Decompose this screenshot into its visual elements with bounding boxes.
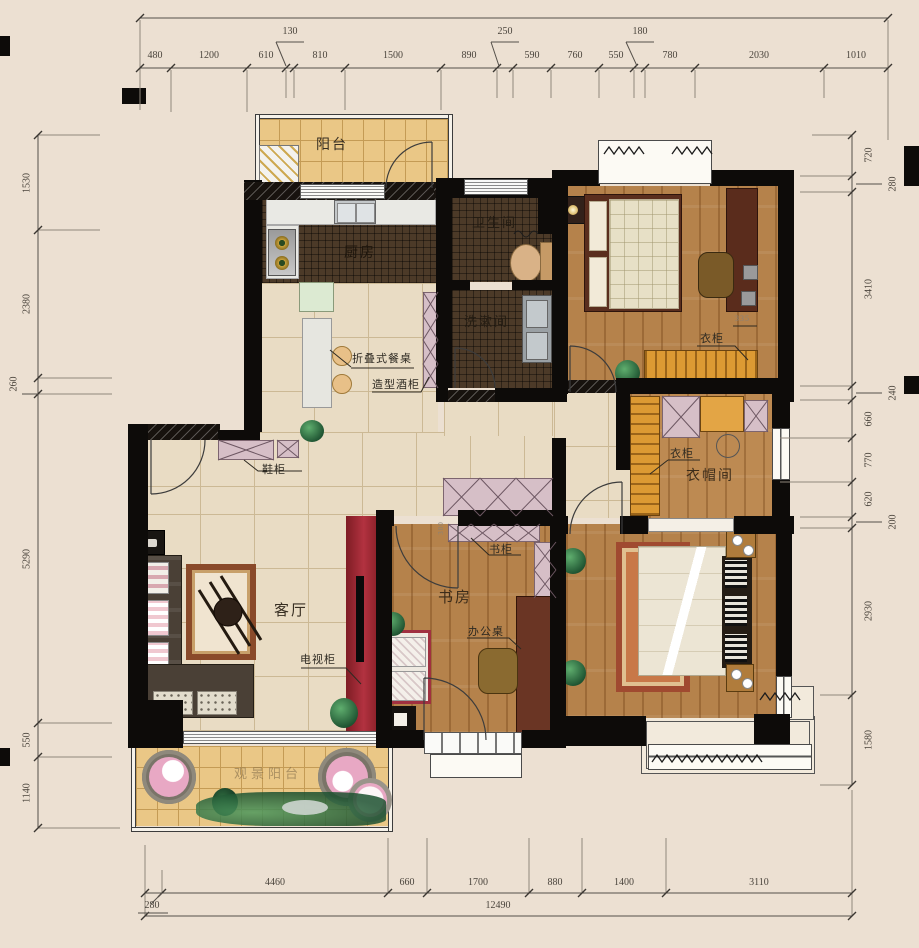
- dim-top: 1500: [383, 50, 403, 61]
- pillow: [725, 560, 747, 588]
- pillow: [589, 257, 607, 307]
- dim-right: 2930: [864, 601, 875, 621]
- wall: [244, 180, 262, 432]
- sliding-window: [300, 184, 385, 199]
- lamp: [568, 205, 578, 215]
- side-table-item: [147, 539, 157, 547]
- dim-top: 780: [663, 50, 678, 61]
- sink-basin: [356, 203, 375, 223]
- entry-wall: [146, 424, 220, 440]
- dim-top: 2030: [749, 50, 769, 61]
- dining-table: [302, 318, 332, 408]
- wall: [616, 378, 794, 394]
- wall: [552, 170, 600, 186]
- dim-right: 660: [864, 412, 875, 427]
- wall: [776, 524, 792, 676]
- dim-left: 1530: [22, 173, 33, 193]
- stool: [716, 434, 740, 458]
- room-label-bathroom: 卫生间: [472, 212, 517, 231]
- dim-left: 550: [22, 733, 33, 748]
- cloakroom-cabinet-3: [744, 400, 768, 432]
- wall: [436, 388, 448, 402]
- master-side-window: [776, 676, 792, 718]
- dim-top: 610: [259, 50, 274, 61]
- dim-right: 3410: [864, 279, 875, 299]
- dim-top: 550: [609, 50, 624, 61]
- label-shoe-cabinet: 鞋柜: [262, 461, 286, 477]
- plant: [330, 698, 358, 728]
- wall: [376, 730, 424, 748]
- dim-left: 260: [9, 377, 20, 392]
- wall: [778, 170, 794, 402]
- desk-item: [743, 265, 758, 280]
- balcony-right-wall: [448, 114, 453, 186]
- bookcase-top: [448, 524, 540, 542]
- dim-top: 180: [633, 26, 648, 37]
- dim-bottom: 4460: [265, 877, 285, 888]
- dim-right: 240: [888, 386, 899, 401]
- sofa-pillow: [145, 562, 169, 594]
- room-label-kitchen: 厨房: [344, 242, 376, 262]
- burner: [275, 256, 289, 270]
- tv: [356, 576, 364, 662]
- dim-bottom: 280: [145, 900, 160, 911]
- label-note-300: 300: [437, 521, 445, 535]
- nightstand: [726, 664, 754, 692]
- cloakroom-window: [772, 428, 790, 480]
- vanity-sinks: [522, 295, 552, 363]
- balcony-rail-left: [131, 744, 136, 832]
- wall-stub: [904, 376, 919, 394]
- dining-chair: [332, 346, 352, 366]
- sink-basin: [337, 203, 356, 223]
- floor-plan: 480 1200 610 130 810 1500 890 250 590 76…: [0, 0, 919, 948]
- wall: [552, 438, 566, 518]
- dim-top: 480: [148, 50, 163, 61]
- wall: [512, 280, 554, 290]
- duvet: [609, 199, 679, 309]
- dim-right: 620: [864, 492, 875, 507]
- sofa-cushion: [197, 691, 237, 715]
- wall-stub: [0, 748, 10, 766]
- nightstand: [726, 530, 756, 558]
- dim-right: 280: [888, 177, 899, 192]
- lamp: [743, 545, 754, 556]
- wall: [552, 378, 568, 394]
- wall-column: [754, 714, 790, 748]
- label-office-desk: 办公桌: [468, 623, 504, 639]
- floor-lamp-shade: [394, 713, 407, 726]
- label-wardrobe-cloakroom: 衣柜: [670, 445, 694, 461]
- wall: [376, 510, 394, 526]
- cloakroom-cabinet-2: [700, 396, 744, 432]
- balcony-rail-bottom: [131, 827, 393, 832]
- balcony-sliding-door: [183, 731, 377, 744]
- dim-bottom: 3110: [749, 877, 769, 888]
- master-headboard: [722, 556, 752, 668]
- master-bay-window: [648, 744, 812, 770]
- label-folding-table: 折叠式餐桌: [352, 350, 412, 366]
- dim-bottom: 660: [400, 877, 415, 888]
- dim-bottom: 1400: [614, 877, 634, 888]
- dim-top: 890: [462, 50, 477, 61]
- dim-left: 2380: [22, 294, 33, 314]
- wall-marble: [385, 182, 434, 200]
- cushion: [390, 671, 426, 701]
- pillow: [725, 634, 747, 662]
- dim-top: 590: [525, 50, 540, 61]
- label-wine-cabinet: 造型酒柜: [372, 376, 420, 392]
- shoe-cabinet: [218, 440, 274, 460]
- garden-rocks: [282, 800, 328, 815]
- wall: [522, 730, 566, 748]
- wall: [436, 280, 470, 290]
- wall: [458, 510, 562, 526]
- living-rug: [186, 564, 256, 660]
- label-note-335: 335: [735, 314, 750, 323]
- bed: [584, 194, 682, 312]
- wall: [436, 196, 452, 388]
- pillow: [725, 596, 747, 626]
- cloakroom-cabinet: [662, 396, 700, 438]
- wall: [376, 514, 392, 746]
- basin: [526, 300, 548, 328]
- balcony-top-wall: [255, 114, 453, 119]
- dim-top: 250: [498, 26, 513, 37]
- dining-chair: [332, 374, 352, 394]
- cloakroom-threshold: [648, 518, 734, 532]
- dim-top: 1200: [199, 50, 219, 61]
- burner: [275, 236, 289, 250]
- wall: [128, 424, 148, 746]
- cloakroom-wardrobe: [630, 396, 660, 516]
- toilet: [510, 244, 542, 282]
- room-label-living: 客厅: [274, 599, 308, 620]
- label-tv-cabinet: 电视柜: [300, 651, 336, 667]
- wall: [552, 178, 568, 392]
- wall-stub: [122, 88, 146, 104]
- chair-cushion: [149, 757, 189, 797]
- bathroom-window: [464, 179, 528, 195]
- lamp: [732, 535, 743, 546]
- sofa-pillow: [145, 600, 169, 636]
- bedroom-window: [598, 140, 712, 184]
- plant: [300, 420, 324, 442]
- dim-top: 760: [568, 50, 583, 61]
- wall: [218, 430, 260, 440]
- room-label-washroom: 洗漱间: [464, 311, 509, 330]
- room-label-scenic-balcony: 观景阳台: [234, 763, 302, 782]
- wall: [616, 392, 630, 470]
- office-chair: [478, 648, 518, 694]
- cushion: [390, 637, 426, 667]
- basin: [526, 332, 548, 360]
- wall: [128, 700, 183, 748]
- threshold: [568, 380, 616, 393]
- room-label-balcony-top: 阳台: [316, 134, 348, 154]
- fridge: [299, 282, 334, 312]
- dim-right: 1580: [864, 730, 875, 750]
- dim-total: 12490: [486, 900, 511, 911]
- dim-bottom: 880: [548, 877, 563, 888]
- label-wardrobe-bedroom: 衣柜: [700, 330, 724, 346]
- dim-right: 770: [864, 453, 875, 468]
- wall: [552, 716, 646, 746]
- pillow: [589, 201, 607, 251]
- threshold: [448, 390, 495, 402]
- dim-top: 810: [313, 50, 328, 61]
- kitchen-sink: [334, 200, 376, 224]
- wall: [550, 524, 566, 738]
- label-bookcase: 书柜: [489, 541, 513, 557]
- lamp: [742, 678, 753, 689]
- dim-right: 200: [888, 515, 899, 530]
- master-bed: [638, 546, 726, 676]
- dim-bottom: 1700: [468, 877, 488, 888]
- stove: [268, 229, 296, 276]
- wall-stub: [0, 36, 10, 56]
- study-balcony-door: [424, 732, 522, 754]
- dim-right: 720: [864, 148, 875, 163]
- office-desk: [516, 596, 554, 734]
- desk-chair: [698, 252, 734, 298]
- room-label-cloakroom: 衣帽间: [686, 465, 734, 485]
- study-door-outside: [430, 754, 522, 778]
- dim-left: 5290: [22, 549, 33, 569]
- wall: [620, 516, 648, 534]
- round-chair: [142, 750, 196, 804]
- wall-stub: [904, 146, 919, 186]
- dim-top: 130: [283, 26, 298, 37]
- dim-top: 1010: [846, 50, 866, 61]
- room-label-study: 书房: [438, 586, 472, 607]
- dim-left: 1140: [22, 783, 33, 803]
- shoe-cabinet-2: [277, 440, 299, 458]
- desk-item: [741, 291, 756, 306]
- lamp: [731, 669, 742, 680]
